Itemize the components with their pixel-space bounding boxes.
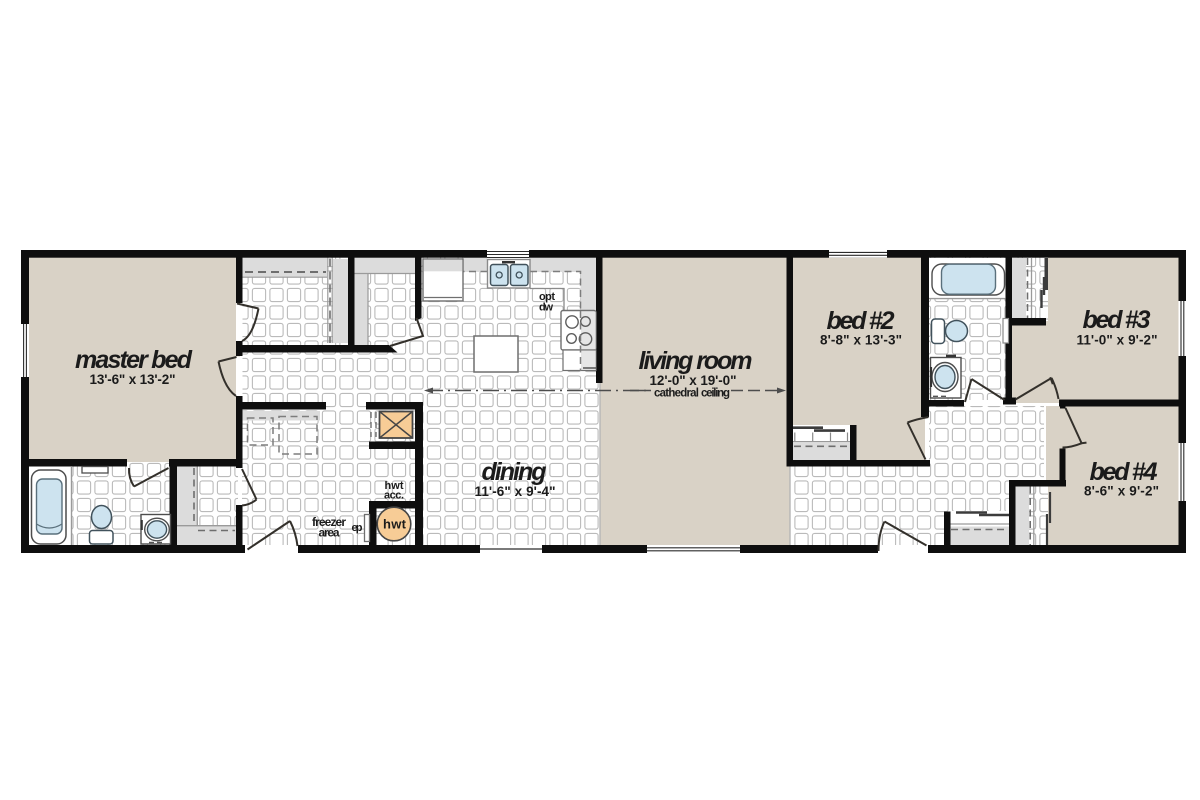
svg-text:master bed: master bed [75, 346, 193, 374]
svg-text:8'-8" x 13'-3": 8'-8" x 13'-3" [820, 333, 902, 348]
svg-text:living room: living room [639, 347, 753, 375]
svg-text:bed #3: bed #3 [1083, 306, 1151, 334]
svg-text:11'-0" x 9'-2": 11'-0" x 9'-2" [1077, 333, 1158, 348]
svg-text:ep: ep [352, 522, 363, 534]
svg-text:cathedral: cathedral [654, 388, 699, 400]
svg-text:11'-6" x 9'-4": 11'-6" x 9'-4" [475, 484, 556, 499]
svg-text:13'-6" x 13'-2": 13'-6" x 13'-2" [90, 372, 176, 387]
svg-text:dining: dining [482, 458, 547, 486]
svg-text:area: area [319, 526, 340, 540]
svg-text:acc.: acc. [384, 490, 404, 502]
svg-text:bed #4: bed #4 [1090, 458, 1158, 486]
svg-text:8'-6" x 9'-2": 8'-6" x 9'-2" [1084, 484, 1159, 499]
svg-text:hwt: hwt [383, 517, 407, 532]
svg-text:bed #2: bed #2 [827, 307, 895, 335]
svg-text:ceiling: ceiling [701, 388, 730, 400]
svg-text:dw: dw [539, 302, 553, 314]
svg-text:12'-0" x 19'-0": 12'-0" x 19'-0" [650, 373, 737, 388]
